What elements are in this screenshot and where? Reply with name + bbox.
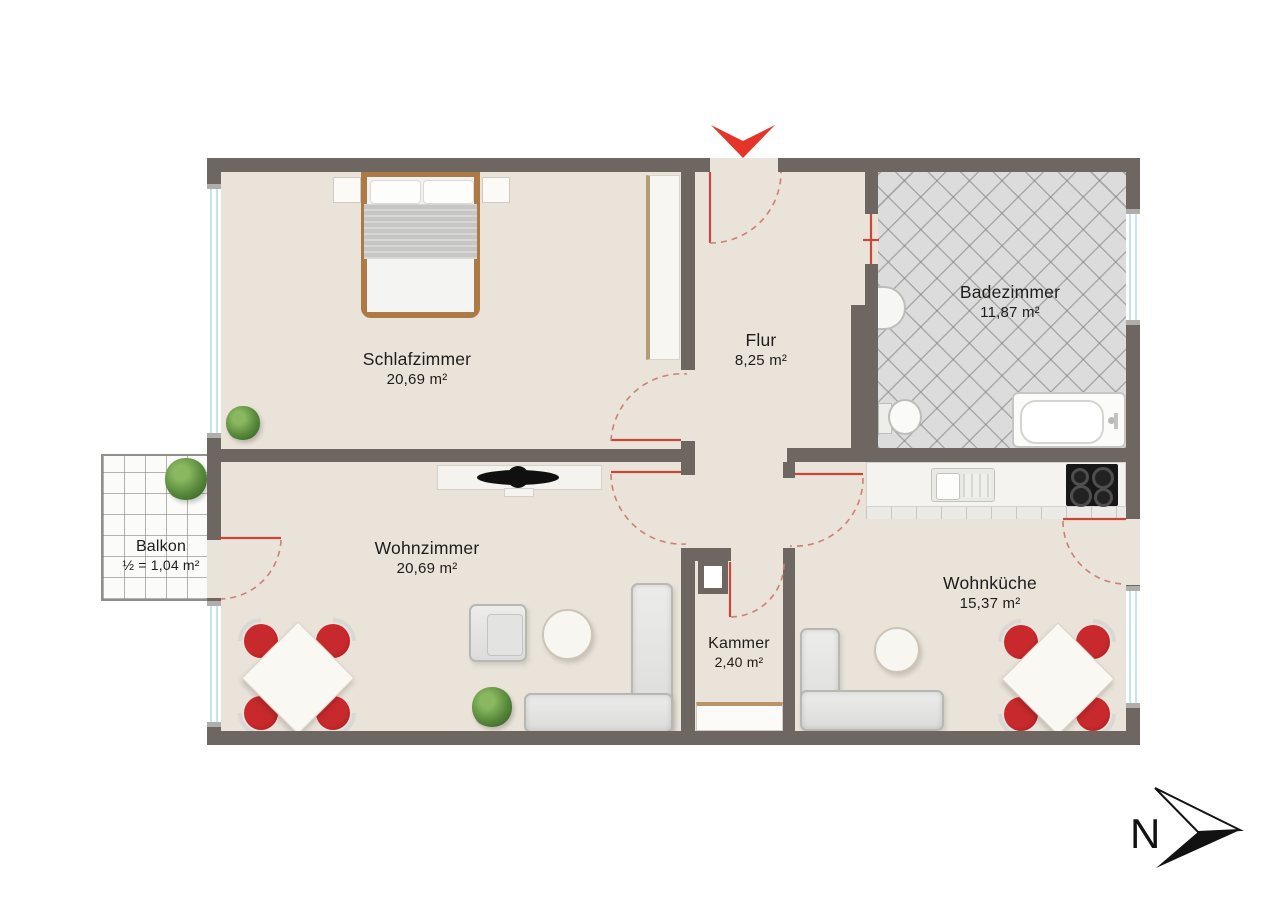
wall [681, 441, 695, 449]
corner-sofa [800, 690, 944, 731]
room-label-badezimmer: Badezimmer 11,87 m² [910, 282, 1110, 323]
room-label-kammer: Kammer 2,40 m² [689, 634, 789, 672]
burner [1094, 488, 1113, 507]
duct-niche [698, 560, 728, 594]
wall [778, 158, 1140, 172]
tv-stand [504, 488, 534, 497]
wall [783, 462, 795, 478]
north-arrow-icon [1155, 788, 1240, 832]
bathtub [1012, 392, 1126, 448]
wall [851, 305, 865, 448]
window [1126, 209, 1140, 325]
coffee-table [542, 609, 593, 660]
window [207, 601, 221, 727]
corner-sofa [524, 693, 673, 733]
north-arrow-icon [1156, 830, 1240, 868]
storage-shelf [696, 702, 783, 731]
bed-sheet [367, 259, 474, 312]
burner [1092, 467, 1114, 489]
sink-drainer [963, 474, 991, 497]
wall [681, 172, 695, 370]
kitchen-door-opening [1126, 519, 1140, 585]
room-label-balkon: Balkon ½ = 1,04 m² [100, 537, 222, 575]
window [207, 184, 221, 438]
double-bed [361, 171, 480, 318]
room-name: Kammer [689, 634, 789, 654]
tv-center [507, 466, 529, 488]
nightstand [482, 177, 510, 203]
room-label-wohnzimmer: Wohnzimmer 20,69 m² [327, 538, 527, 579]
side-table [874, 627, 920, 673]
room-area: 8,25 m² [711, 352, 811, 371]
room-name: Flur [711, 330, 811, 352]
room-area: 20,69 m² [327, 560, 527, 579]
pillow [370, 180, 421, 204]
wall [787, 448, 1140, 462]
wall [865, 172, 878, 214]
room-label-wohnkueche: Wohnküche 15,37 m² [890, 573, 1090, 614]
room-name: Balkon [100, 537, 222, 557]
sink-basin [936, 473, 960, 500]
wall [865, 264, 878, 448]
armchair [469, 604, 527, 662]
room-area: ½ = 1,04 m² [100, 557, 222, 575]
armchair-seat [487, 614, 523, 656]
wall [207, 731, 1140, 745]
potted-plant [472, 687, 512, 727]
kitchen-sink [931, 468, 995, 502]
potted-plant [165, 458, 207, 500]
wall [214, 449, 695, 462]
cooktop [1066, 464, 1118, 506]
floor-plan: N Schlafzimmer 20,69 m² Flur 8,25 m² Bad… [0, 0, 1280, 905]
room-name: Wohnzimmer [327, 538, 527, 560]
blanket [364, 204, 477, 259]
north-label: N [1130, 810, 1160, 857]
burner [1070, 485, 1092, 507]
wardrobe [646, 175, 680, 360]
window [1126, 586, 1140, 708]
wall [207, 158, 710, 172]
entrance-arrow-icon [711, 125, 775, 158]
wall [681, 462, 695, 475]
kitchen-backsplash [866, 507, 1126, 519]
toilet [888, 399, 922, 435]
room-area: 15,37 m² [890, 595, 1090, 614]
room-name: Wohnküche [890, 573, 1090, 595]
room-label-flur: Flur 8,25 m² [711, 330, 811, 371]
nightstand [333, 177, 361, 203]
bathtub-handle [1114, 413, 1118, 429]
potted-plant [226, 406, 260, 440]
bathtub-basin [1020, 400, 1104, 444]
room-name: Badezimmer [910, 282, 1110, 304]
room-area: 2,40 m² [689, 654, 789, 672]
room-name: Schlafzimmer [317, 349, 517, 371]
pillow [423, 180, 474, 204]
burner [1071, 468, 1089, 486]
room-area: 20,69 m² [317, 371, 517, 390]
room-area: 11,87 m² [910, 304, 1110, 323]
room-label-schlafzimmer: Schlafzimmer 20,69 m² [317, 349, 517, 390]
